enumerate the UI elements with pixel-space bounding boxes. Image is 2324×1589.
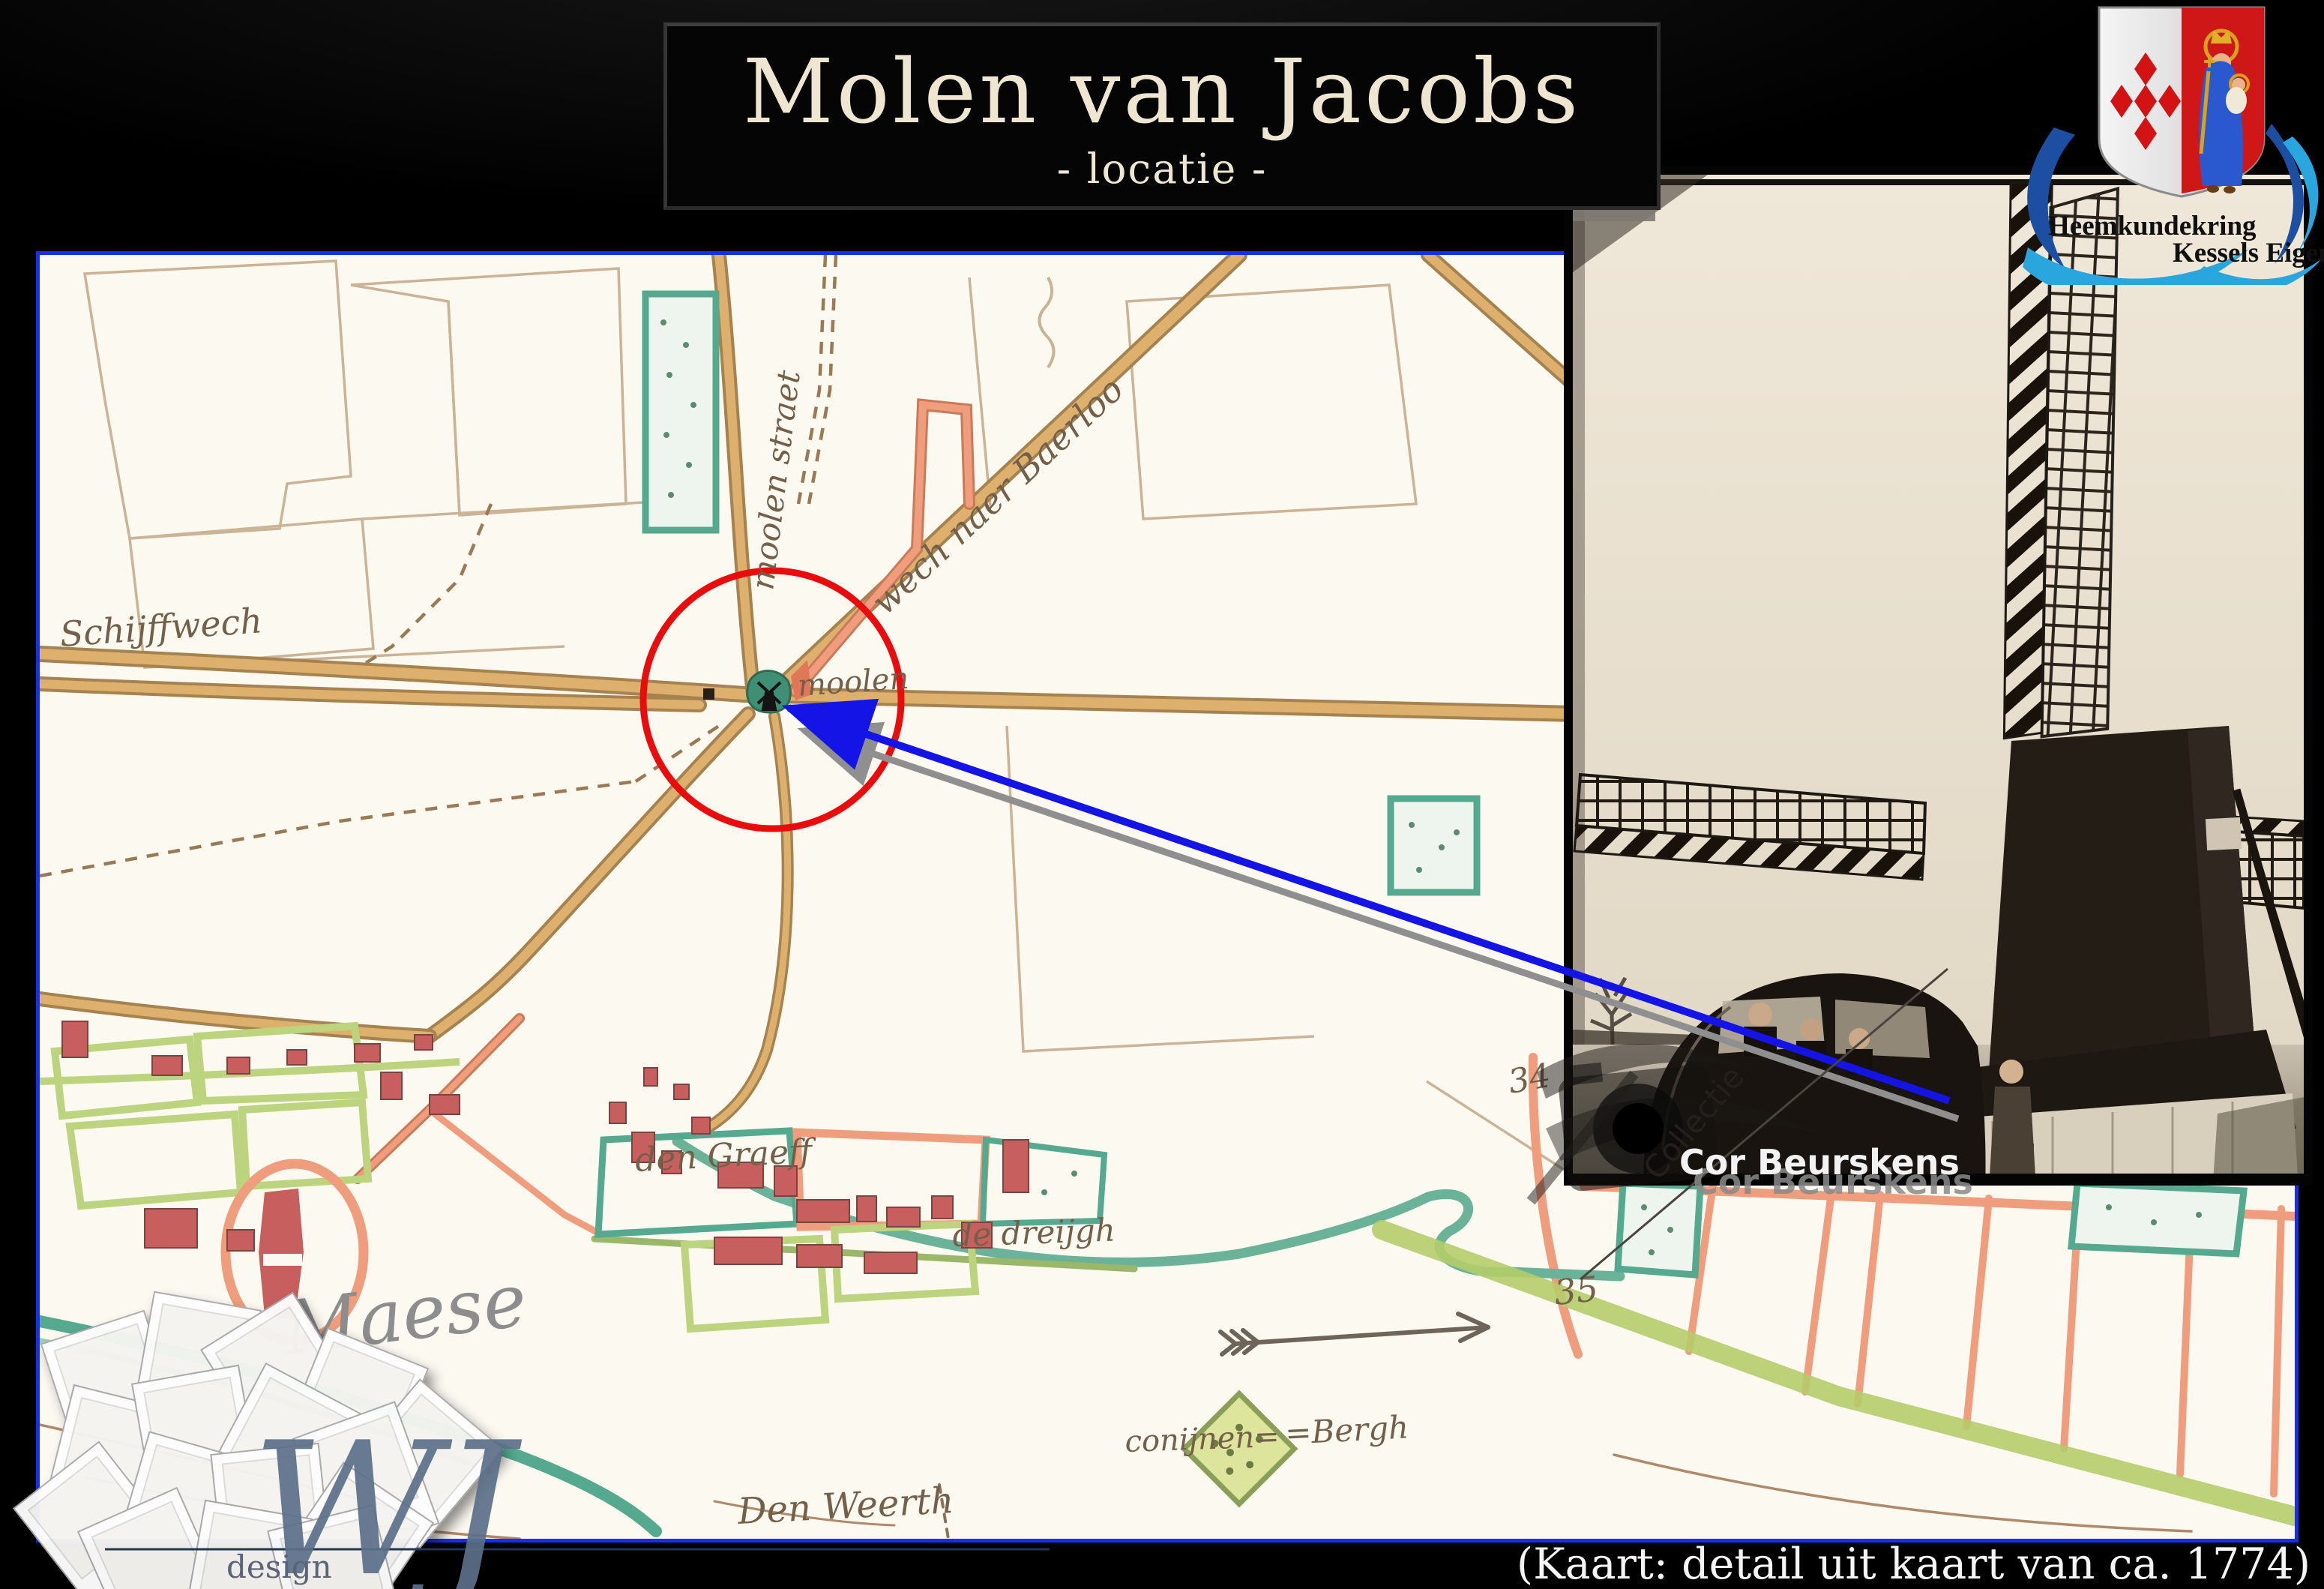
label-maese: Maese [277,1258,532,1372]
map-arrow-sketch [1220,1314,1488,1354]
coat-of-arms [2099,7,2264,196]
windmill-photo [1564,166,2313,1186]
heemkundekring-logo: Heemkundekring Kessels Eigen [2009,0,2324,285]
label-35: 35 [1553,1268,1601,1313]
title-box: Molen van Jacobs - locatie - [663,22,1661,210]
page-subtitle: - locatie - [667,145,1657,193]
label-den-weerth: Den Weerth [736,1480,955,1533]
slide: Schijffwech moolen straet wech naer Baer… [0,0,2324,1589]
page-title: Molen van Jacobs [667,40,1657,143]
label-moolen-straet: moolen straet [744,368,807,592]
label-de-dreijgh: de dreijgh [952,1211,1116,1254]
label-bergh: =Bergh [1284,1408,1409,1452]
label-34: 34 [1505,1057,1553,1102]
logo-line1: Heemkundekring [2048,211,2257,241]
logo-line2: Kessels Eigen [2173,238,2324,268]
windmill-photo-drawing [1573,175,2304,1174]
label-wech-naer-baerloo: wech naer Baerloo [864,369,1131,622]
village-buildings [62,1021,1029,1273]
label-schijffwech: Schijffwech [58,600,264,655]
field-boundaries [85,261,1578,1179]
standing-person [1999,1060,2023,1084]
designer-label: design [226,1549,332,1585]
map-labels: Schijffwech moolen straet wech naer Baer… [58,368,1600,1533]
village-kessel [40,1021,1029,1341]
label-conijnen: conijnen= [1125,1420,1280,1459]
map-source-caption: (Kaart: detail uit kaart van ca. 1774) [1411,1540,2311,1589]
